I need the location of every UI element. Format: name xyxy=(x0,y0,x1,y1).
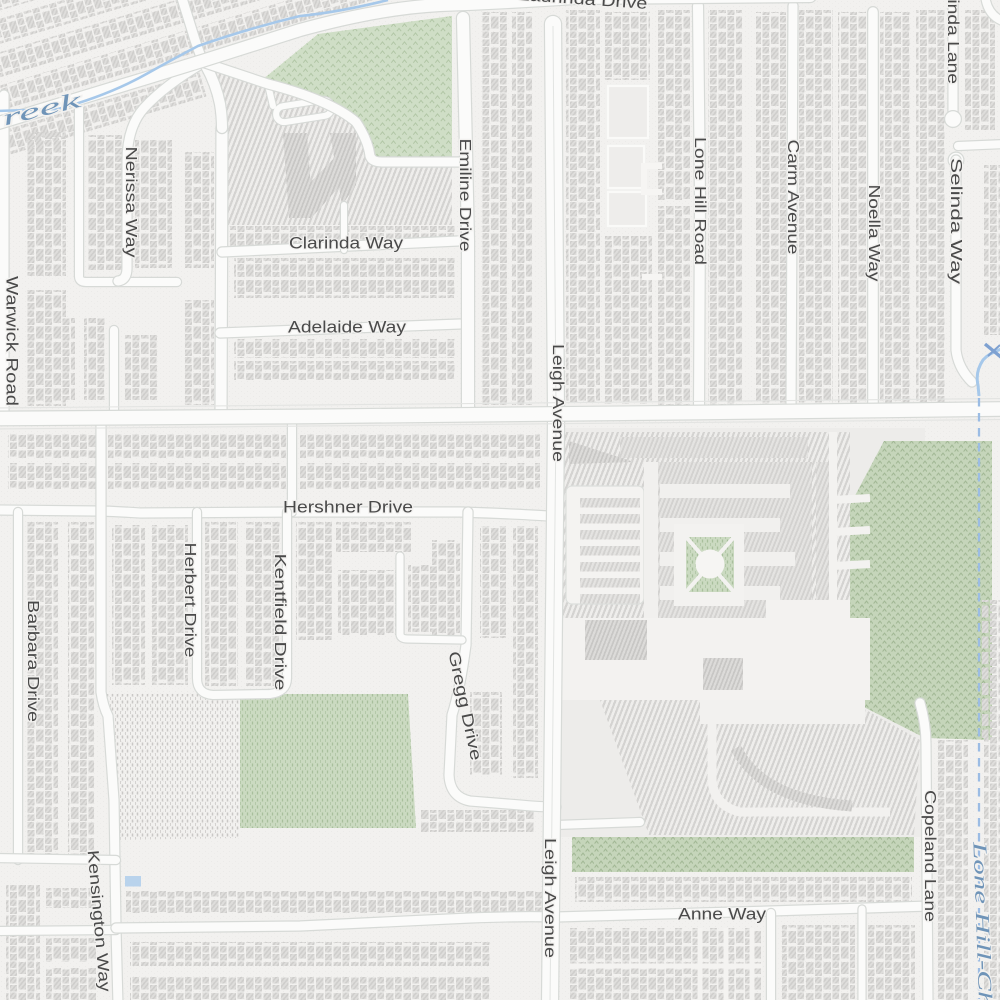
svg-text:Carm Avenue: Carm Avenue xyxy=(784,140,801,255)
svg-text:Selinda Way: Selinda Way xyxy=(947,158,964,284)
svg-text:Leigh Avenue: Leigh Avenue xyxy=(541,838,558,958)
svg-text:Barbara Drive: Barbara Drive xyxy=(24,600,41,722)
svg-text:Noella Way: Noella Way xyxy=(865,185,882,282)
svg-text:Emiline Drive: Emiline Drive xyxy=(456,139,473,252)
svg-text:Anne Way: Anne Way xyxy=(678,904,767,923)
svg-text:Nerissa Way: Nerissa Way xyxy=(122,147,139,258)
svg-text:Clarinda Way: Clarinda Way xyxy=(289,234,404,252)
svg-text:Clarinda Lane: Clarinda Lane xyxy=(944,0,961,84)
svg-text:Kentfield Drive: Kentfield Drive xyxy=(271,554,288,691)
svg-text:Hershner Drive: Hershner Drive xyxy=(283,498,413,516)
svg-text:Leigh Avenue: Leigh Avenue xyxy=(549,344,566,462)
svg-text:Adelaide Way: Adelaide Way xyxy=(288,318,407,336)
svg-text:Warwick Road: Warwick Road xyxy=(3,276,21,406)
svg-text:Herbert Drive: Herbert Drive xyxy=(181,543,198,658)
svg-text:Lone Hill Road: Lone Hill Road xyxy=(691,137,708,265)
svg-text:Copeland Lane: Copeland Lane xyxy=(921,790,938,922)
